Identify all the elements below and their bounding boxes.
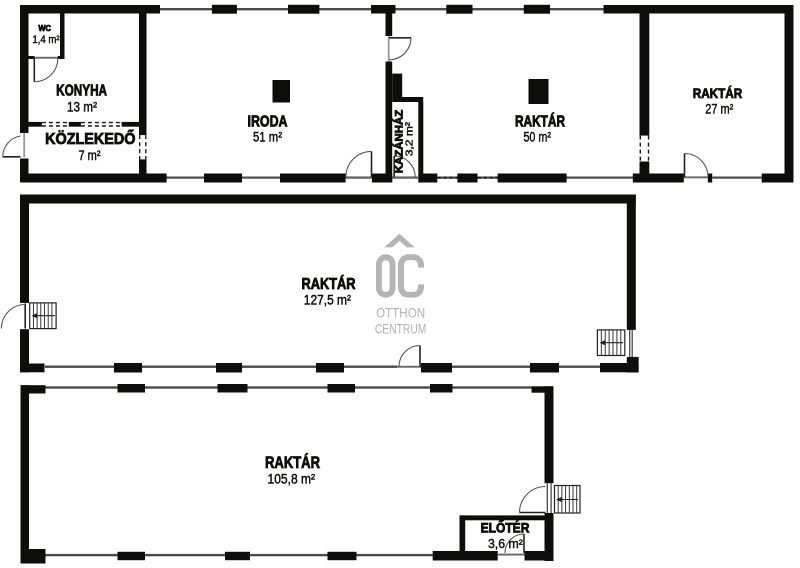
svg-text:27 m²: 27 m² <box>705 102 733 117</box>
svg-text:105,8 m²: 105,8 m² <box>268 472 316 487</box>
svg-text:1,4 m²: 1,4 m² <box>32 34 60 46</box>
svg-text:7 m²: 7 m² <box>79 148 101 163</box>
svg-text:3,6 m²: 3,6 m² <box>488 536 524 551</box>
svg-text:RAKTÁR: RAKTÁR <box>302 276 356 293</box>
svg-text:51 m²: 51 m² <box>253 129 282 144</box>
svg-text:KONYHA: KONYHA <box>56 82 107 99</box>
svg-text:3,2 m²: 3,2 m² <box>405 121 416 156</box>
svg-text:RAKTÁR: RAKTÁR <box>693 85 743 101</box>
svg-text:CENTRUM: CENTRUM <box>375 320 427 336</box>
svg-text:WC: WC <box>38 23 51 33</box>
svg-text:ELŐTÉR: ELŐTÉR <box>481 521 530 536</box>
svg-text:OTTHON: OTTHON <box>376 304 425 320</box>
svg-text:KÖZLEKEDŐ: KÖZLEKEDŐ <box>45 129 135 148</box>
svg-text:IRODA: IRODA <box>248 113 288 130</box>
svg-text:RAKTÁR: RAKTÁR <box>265 453 320 472</box>
svg-text:RAKTÁR: RAKTÁR <box>515 111 565 130</box>
svg-text:127,5 m²: 127,5 m² <box>304 292 351 308</box>
svg-text:50 m²: 50 m² <box>523 129 551 144</box>
svg-text:13 m²: 13 m² <box>67 100 97 115</box>
